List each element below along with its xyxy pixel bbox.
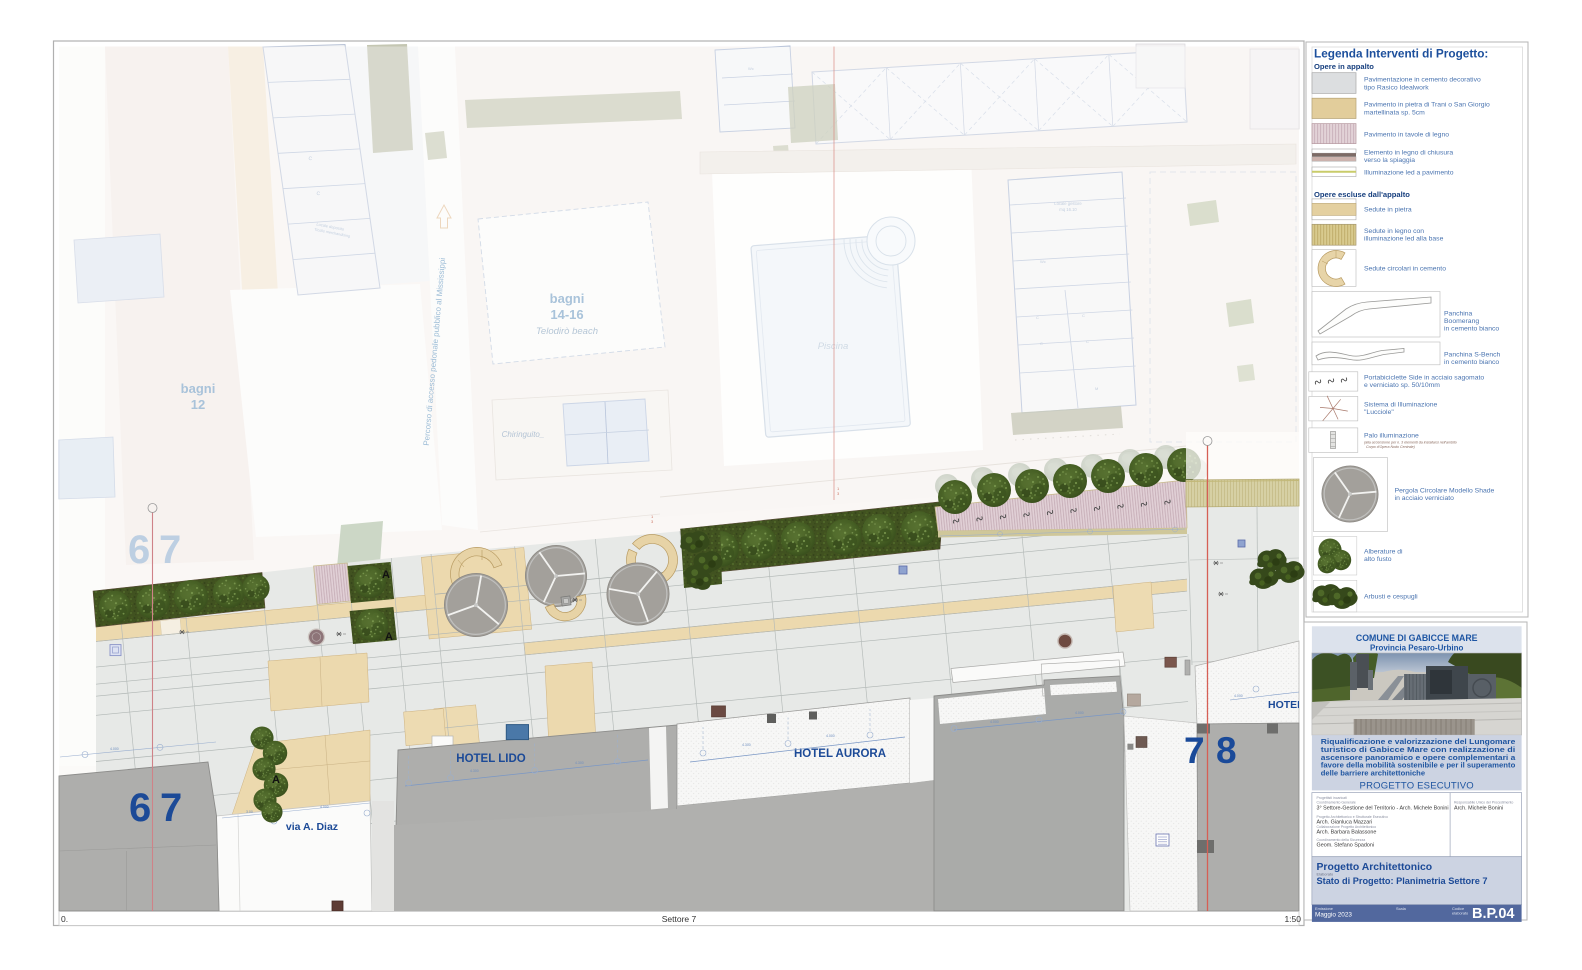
svg-text:A: A [385, 631, 393, 643]
svg-text:4.000: 4.000 [110, 747, 119, 751]
svg-text:B.P.04: B.P.04 [1472, 906, 1514, 922]
svg-text:elaborato: elaborato [1452, 911, 1468, 916]
svg-text:Progetto Architettonico: Progetto Architettonico [1317, 862, 1433, 873]
svg-text:4.300: 4.300 [742, 743, 751, 747]
svg-text:Pavimento in tavole di legno: Pavimento in tavole di legno [1364, 132, 1449, 139]
svg-text:illuminazione led alla base: illuminazione led alla base [1364, 236, 1444, 243]
svg-text:4.000: 4.000 [320, 805, 329, 809]
svg-text:Sedute circolari in cemento: Sedute circolari in cemento [1364, 266, 1446, 273]
svg-text:4.000: 4.000 [826, 734, 835, 738]
svg-text:6: 6 [129, 786, 151, 830]
svg-text:Opere in appalto: Opere in appalto [1314, 62, 1374, 71]
svg-text:Arbusti e cespugli: Arbusti e cespugli [1364, 594, 1418, 601]
svg-text:7: 7 [160, 786, 182, 830]
svg-text:7: 7 [159, 528, 181, 572]
svg-text:Arch. Barbara Balassone: Arch. Barbara Balassone [1317, 829, 1377, 835]
svg-text:Progetto Architettonico e Stru: Progetto Architettonico e Strutturale Es… [1317, 815, 1388, 819]
svg-text:4.000: 4.000 [1075, 711, 1084, 715]
svg-text:Pergola Circolare Modello Shad: Pergola Circolare Modello Shade [1395, 488, 1495, 495]
svg-text:0.: 0. [61, 914, 68, 924]
svg-text:Sistema di Illuminazione: Sistema di Illuminazione [1364, 402, 1438, 409]
svg-text:4.000: 4.000 [990, 720, 999, 724]
svg-text:alto fusto: alto fusto [1364, 556, 1392, 563]
svg-text:HOTEL: HOTEL [1268, 699, 1304, 711]
svg-text:bagni: bagni [181, 381, 216, 396]
svg-text:Emissione: Emissione [1315, 906, 1333, 911]
svg-text:in cemento bianco: in cemento bianco [1444, 326, 1499, 333]
svg-text:Arch. Michele Bonini: Arch. Michele Bonini [1454, 805, 1503, 811]
svg-text:Geom. Stefano Spadoni: Geom. Stefano Spadoni [1317, 842, 1375, 848]
svg-text:HOTEL LIDO: HOTEL LIDO [456, 753, 525, 765]
svg-text:via A. Diaz: via A. Diaz [286, 821, 338, 833]
svg-text:PROGETTO ESECUTIVO: PROGETTO ESECUTIVO [1360, 780, 1474, 791]
svg-text:1:50: 1:50 [1284, 914, 1301, 924]
svg-text:Sedute in legno con: Sedute in legno con [1364, 228, 1424, 235]
svg-text:6: 6 [128, 528, 150, 572]
svg-text:e verniciato sp. 50/10mm: e verniciato sp. 50/10mm [1364, 382, 1440, 389]
svg-text:Boomerang: Boomerang [1444, 318, 1479, 325]
svg-text:Palo illuminazione: Palo illuminazione [1364, 433, 1419, 440]
svg-text:verso la spiaggia: verso la spiaggia [1364, 157, 1415, 164]
svg-text:12: 12 [191, 397, 205, 412]
svg-text:Panchina: Panchina [1444, 311, 1473, 318]
svg-text:Provincia Pesaro-Urbino: Provincia Pesaro-Urbino [1370, 644, 1463, 653]
svg-text:"Lucciole": "Lucciole" [1364, 409, 1394, 416]
svg-text:HOTEL AURORA: HOTEL AURORA [794, 748, 886, 760]
svg-text:4.300: 4.300 [470, 769, 479, 773]
svg-text:7: 7 [1184, 730, 1205, 771]
svg-text:Stato di Progetto: Planimetria: Stato di Progetto: Planimetria Settore 7 [1317, 876, 1488, 886]
svg-text:Alberature di: Alberature di [1364, 549, 1403, 556]
svg-text:Telodirò beach: Telodirò beach [536, 326, 598, 337]
svg-text:A: A [382, 569, 390, 581]
svg-text:3.00: 3.00 [246, 810, 253, 814]
svg-text:3° Settore-Gestione del Territ: 3° Settore-Gestione del Territorio - Arc… [1317, 805, 1449, 811]
svg-text:14-16: 14-16 [550, 307, 583, 322]
svg-text:Opere escluse dall'appalto: Opere escluse dall'appalto [1314, 190, 1410, 199]
svg-text:Maggio 2023: Maggio 2023 [1315, 912, 1352, 919]
svg-text:Settore 7: Settore 7 [662, 914, 697, 924]
svg-text:Responsabile Unico del Procedi: Responsabile Unico del Procedimento [1454, 800, 1513, 804]
svg-text:Elemento in legno di chiusura: Elemento in legno di chiusura [1364, 150, 1453, 157]
svg-text:Sedute in pietra: Sedute in pietra [1364, 207, 1412, 214]
svg-text:in cemento bianco: in cemento bianco [1444, 359, 1499, 366]
svg-text:tipo Rasico Idealwork: tipo Rasico Idealwork [1364, 85, 1429, 92]
svg-text:Pavimentazione in cemento deco: Pavimentazione in cemento decorativo [1364, 77, 1481, 84]
svg-text:Legenda Interventi di Progett: Legenda Interventi di Progetto: [1314, 47, 1488, 61]
svg-text:Chiringuito_: Chiringuito_ [502, 430, 545, 439]
svg-text:bagni: bagni [550, 291, 585, 306]
svg-text:Portabiciclette Side in acciai: Portabiciclette Side in acciaio sagomato [1364, 375, 1484, 382]
svg-text:(alla accensione per n. 3 elem: (alla accensione per n. 3 elementi da in… [1364, 441, 1457, 445]
svg-text:4.300: 4.300 [575, 761, 584, 765]
svg-text:Coordinamento Generale: Coordinamento Generale [1317, 800, 1356, 804]
svg-text:COMUNE DI GABICCE MARE: COMUNE DI GABICCE MARE [1356, 633, 1478, 643]
svg-text:8: 8 [1216, 730, 1237, 771]
svg-text:Corpo d'Opera Nodo Centrale): Corpo d'Opera Nodo Centrale) [1366, 445, 1415, 449]
svg-text:martellinata sp. 5cm: martellinata sp. 5cm [1364, 110, 1425, 117]
svg-text:4.000: 4.000 [1234, 694, 1243, 698]
svg-text:A: A [272, 774, 280, 786]
svg-text:Progettisti incaricati: Progettisti incaricati [1317, 796, 1348, 800]
svg-text:Scala: Scala [1396, 906, 1407, 911]
svg-text:Coordinamento della Sicurezza: Coordinamento della Sicurezza [1317, 838, 1366, 842]
svg-text:delle barriere architettoniche: delle barriere architettoniche [1321, 769, 1425, 778]
svg-text:in acciaio verniciato: in acciaio verniciato [1395, 495, 1455, 502]
svg-text:Illuminazione led a pavimento: Illuminazione led a pavimento [1364, 170, 1454, 177]
svg-text:Panchina S-Bench: Panchina S-Bench [1444, 352, 1501, 359]
svg-text:Collaborazione Progetto Archit: Collaborazione Progetto Architettonico [1317, 825, 1377, 829]
svg-text:Pavimento in pietra di Trani o: Pavimento in pietra di Trani o San Giorg… [1364, 102, 1490, 109]
